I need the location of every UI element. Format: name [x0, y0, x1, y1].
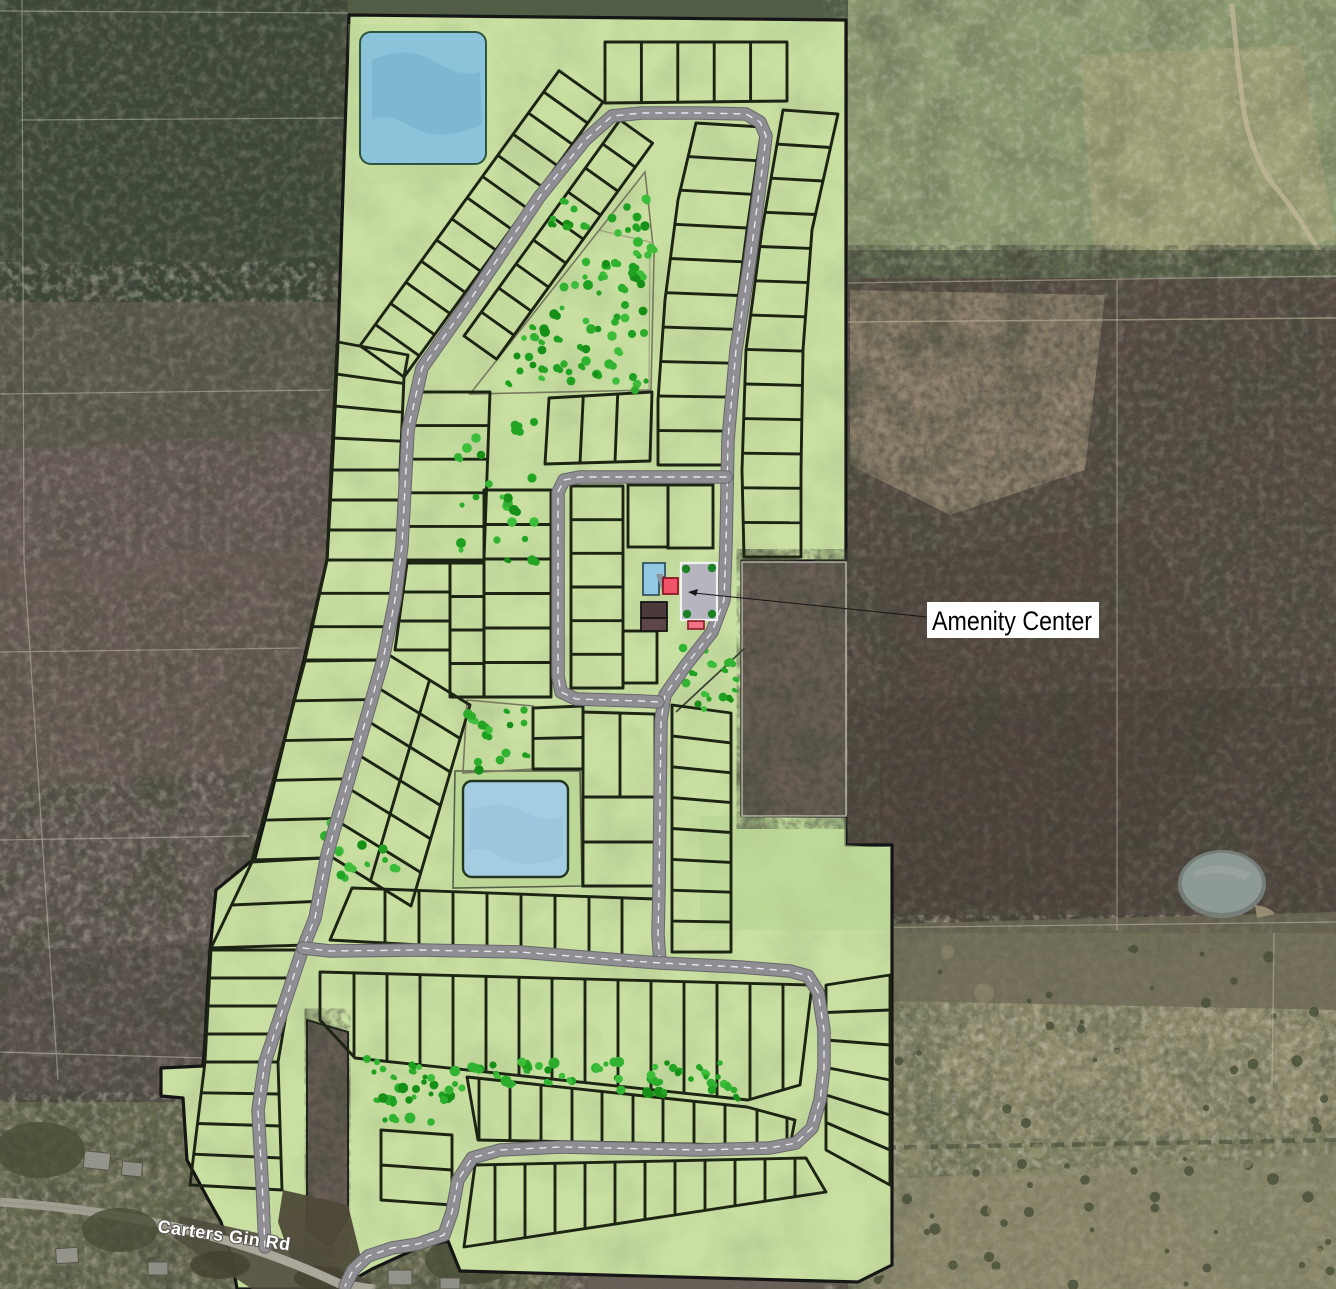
svg-text:Amenity Center: Amenity Center: [932, 606, 1092, 636]
